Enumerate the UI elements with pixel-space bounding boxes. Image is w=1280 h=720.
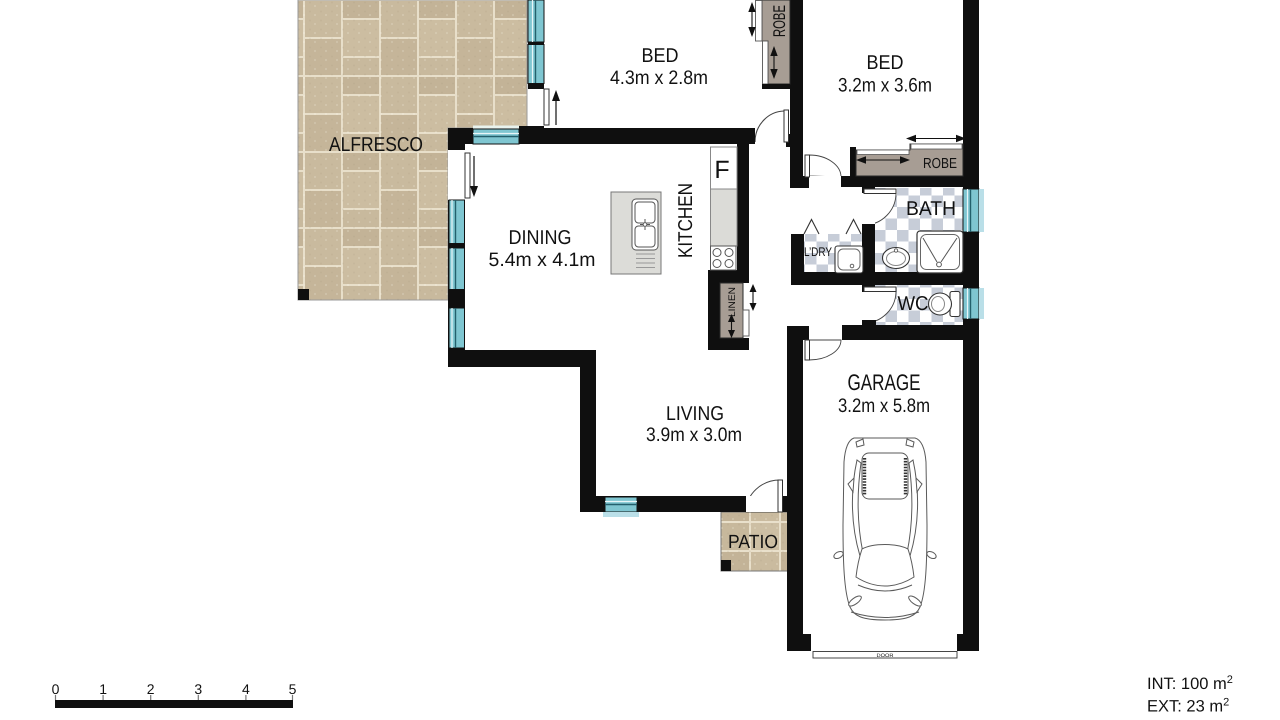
- svg-text:L’DRY: L’DRY: [804, 245, 833, 259]
- svg-text:WC: WC: [898, 293, 929, 315]
- svg-text:4: 4: [242, 681, 250, 697]
- svg-text:ROBE: ROBE: [923, 156, 957, 172]
- svg-text:ROBE: ROBE: [770, 5, 789, 37]
- svg-text:3.2m x 3.6m: 3.2m x 3.6m: [838, 75, 932, 97]
- svg-text:5: 5: [289, 681, 297, 697]
- svg-text:2: 2: [147, 681, 155, 697]
- svg-text:BED: BED: [642, 45, 679, 67]
- svg-text:5.4m x 4.1m: 5.4m x 4.1m: [489, 249, 596, 271]
- svg-text:LINEN: LINEN: [727, 287, 738, 317]
- svg-text:GARAGE: GARAGE: [848, 370, 921, 395]
- svg-text:F: F: [714, 156, 729, 184]
- svg-text:0: 0: [52, 681, 60, 697]
- svg-text:1: 1: [99, 681, 107, 697]
- svg-text:4.3m x 2.8m: 4.3m x 2.8m: [610, 67, 708, 89]
- svg-text:DINING: DINING: [509, 227, 572, 249]
- svg-text:BATH: BATH: [906, 198, 956, 220]
- svg-text:3.9m x 3.0m: 3.9m x 3.0m: [646, 424, 742, 446]
- svg-text:ALFRESCO: ALFRESCO: [329, 134, 423, 156]
- svg-text:KITCHEN: KITCHEN: [675, 183, 697, 258]
- svg-text:PATIO: PATIO: [728, 532, 778, 553]
- svg-text:3.2m x 5.8m: 3.2m x 5.8m: [838, 395, 930, 417]
- svg-text:INT: 100 m2: INT: 100 m2: [1147, 674, 1233, 693]
- svg-text:EXT: 23 m2: EXT: 23 m2: [1147, 697, 1229, 716]
- svg-text:DOOR: DOOR: [877, 653, 894, 659]
- svg-text:BED: BED: [867, 52, 904, 74]
- svg-text:3: 3: [194, 681, 202, 697]
- svg-text:LIVING: LIVING: [666, 403, 724, 425]
